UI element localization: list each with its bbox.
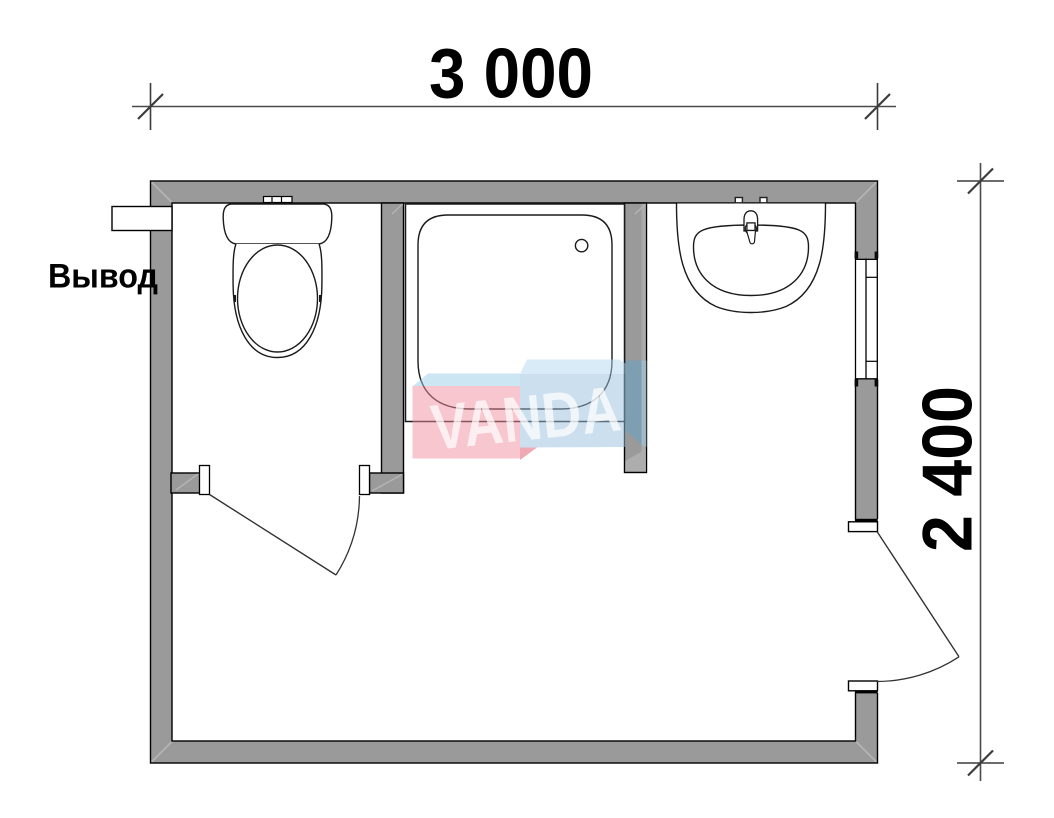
svg-text:3 000: 3 000: [429, 34, 593, 113]
svg-text:Вывод: Вывод: [48, 258, 158, 296]
svg-text:2 400: 2 400: [908, 386, 987, 552]
